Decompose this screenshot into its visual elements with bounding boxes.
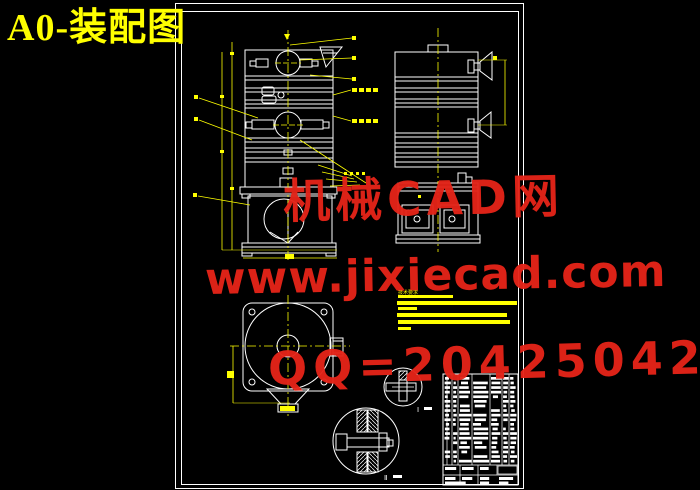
detail-2-label: Ⅱ [384,474,387,482]
watermark-qq: QQ=20425042 [267,330,700,395]
watermark-url: www.jixiecad.com [205,246,667,305]
detail-view-2: Ⅱ [333,408,402,482]
page-title: A0-装配图 [7,0,186,51]
watermark-site-name: 机械CAD网 [282,157,564,232]
detail-1-label: Ⅰ [417,406,419,414]
cad-drawing: Ⅰ Ⅱ [0,0,700,490]
cad-preview-canvas: A0-装配图 机械CAD网 www.jixiecad.com QQ=204250… [0,0,700,490]
